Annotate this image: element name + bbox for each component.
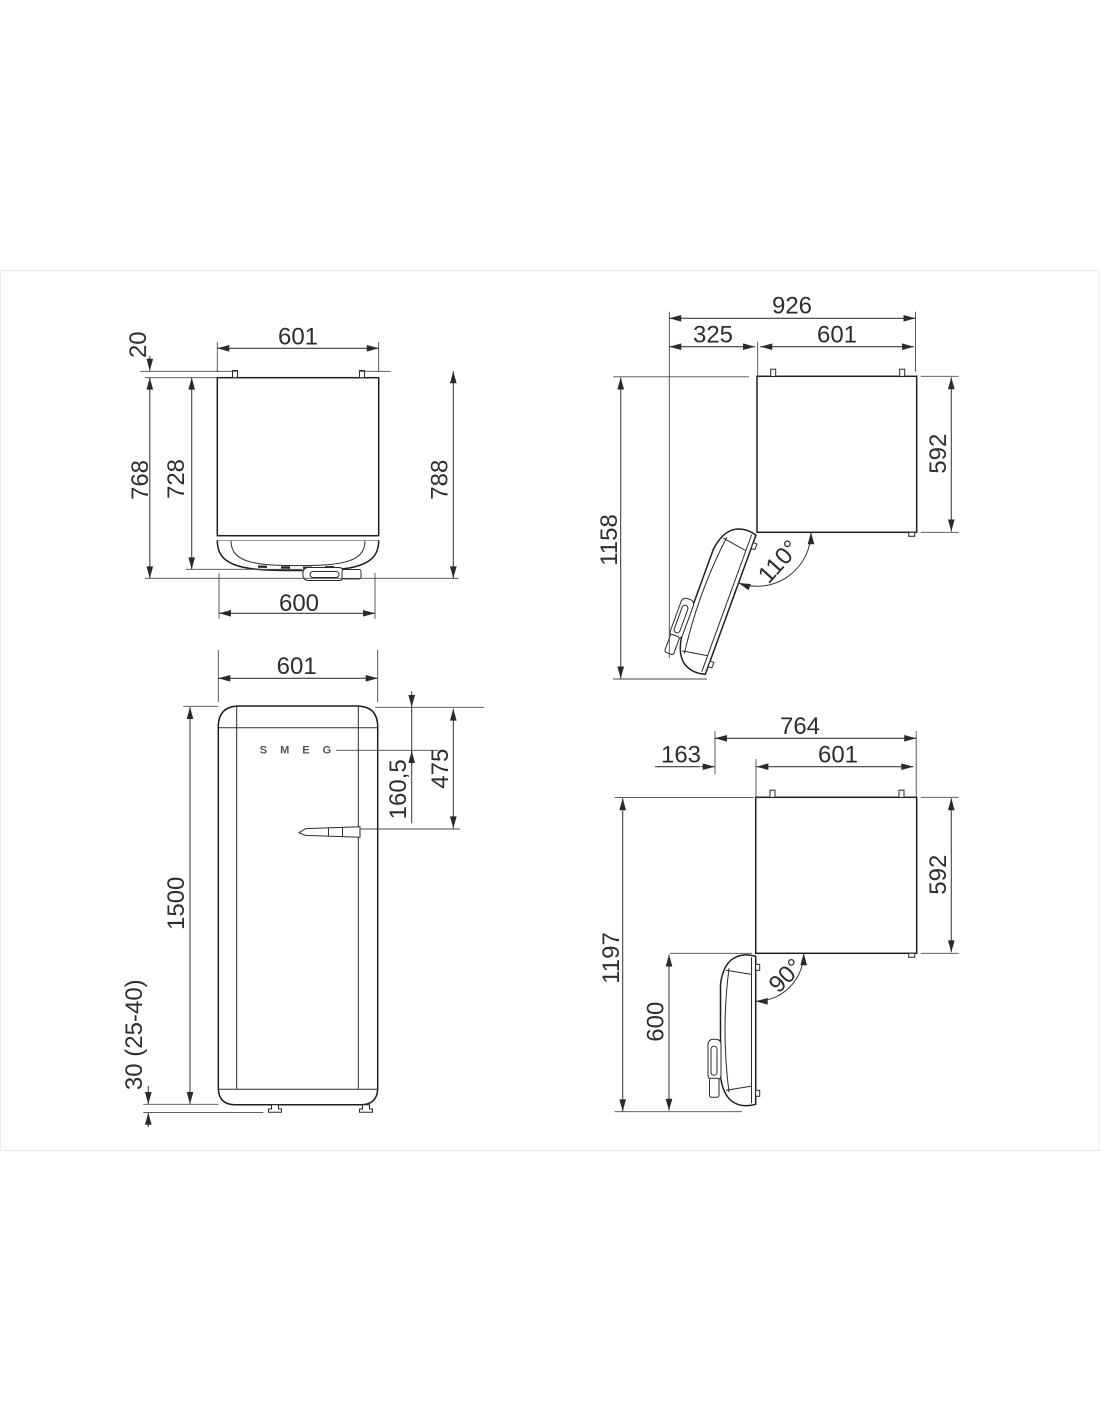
hinge-pin xyxy=(899,790,904,797)
dim-label-601: 601 xyxy=(818,742,858,769)
cabinet-top-outline xyxy=(757,376,917,532)
dim-label-728: 728 xyxy=(163,459,190,499)
refrigerator-dimension-diagram: 601 20 768 728 788 600 xyxy=(0,0,1100,1422)
dim-label-325: 325 xyxy=(693,322,733,349)
door-open-110 xyxy=(660,517,760,677)
dim-height: 1500 xyxy=(163,707,190,1104)
dim-width-top: 601 xyxy=(217,324,378,351)
dim-label-601: 601 xyxy=(817,322,857,349)
dim-width-door: 600 xyxy=(219,590,375,617)
dim-label-20: 20 xyxy=(125,331,152,358)
top-view-door-closed: 601 20 768 728 788 600 xyxy=(125,324,459,619)
dim-depth-total: 788 xyxy=(427,371,454,578)
dim-width: 601 xyxy=(760,322,914,349)
angle-90-annotation: 90° xyxy=(756,953,809,1001)
smeg-logo: SMEG xyxy=(260,745,344,757)
dim-depth-without-door: 728 xyxy=(163,378,192,570)
cabinet-top-outline xyxy=(217,378,378,536)
dim-label-160-5: 160,5 xyxy=(385,759,412,819)
feet xyxy=(269,1105,373,1113)
dim-label-1197: 1197 xyxy=(598,932,625,984)
corner-nub xyxy=(909,953,915,957)
front-handle xyxy=(299,827,360,837)
dim-label-600: 600 xyxy=(643,1002,670,1042)
dim-label-601-front: 601 xyxy=(277,653,317,680)
dim-label-926: 926 xyxy=(772,293,812,320)
top-view-door-open-110: 110° 926 325 601 1158 59 xyxy=(596,293,959,680)
dim-total-width: 926 xyxy=(669,293,915,320)
top-view-door-open-90: 90° 764 163 601 1197 xyxy=(598,713,959,1112)
dim-label-475: 475 xyxy=(427,749,454,789)
dim-total-depth: 1158 xyxy=(596,378,623,679)
card-border xyxy=(1,271,1100,1151)
dim-label-1500: 1500 xyxy=(163,877,190,930)
dim-hinge-protrusion: 20 xyxy=(125,331,152,370)
dim-door-swing: 325 xyxy=(669,322,755,349)
dim-label-788: 788 xyxy=(427,460,454,500)
cabinet-top-outline xyxy=(756,797,917,953)
hinge-pin xyxy=(900,369,905,376)
angle-label-110: 110° xyxy=(753,535,805,589)
dim-label-592: 592 xyxy=(925,855,952,895)
dim-label-764: 764 xyxy=(780,713,820,740)
dim-cabinet-depth: 592 xyxy=(925,377,952,531)
corner-nub xyxy=(909,532,915,536)
technical-drawing-page: 601 20 768 728 788 600 xyxy=(0,0,1100,1422)
dim-label-163: 163 xyxy=(661,742,701,769)
front-outline xyxy=(218,706,377,1105)
dim-door-depth: 163 xyxy=(655,742,715,769)
dim-depth-with-door: 768 xyxy=(127,378,154,579)
dim-handle-offset: 475 xyxy=(427,709,454,829)
angle-label-90: 90° xyxy=(764,954,809,999)
hinge-pin xyxy=(770,790,775,797)
dim-label-601-top: 601 xyxy=(278,324,318,351)
dim-label-592: 592 xyxy=(925,434,952,474)
hinge-pin xyxy=(771,369,776,376)
dim-door-width: 600 xyxy=(643,955,670,1111)
door-open-90 xyxy=(708,955,760,1106)
dim-logo-offset: 160,5 xyxy=(385,691,412,823)
dim-label-30-25-40: 30 (25-40) xyxy=(121,979,148,1090)
dim-width: 601 xyxy=(218,653,377,680)
dim-label-600: 600 xyxy=(279,590,319,617)
dim-width: 601 xyxy=(756,742,913,769)
dim-cabinet-depth: 592 xyxy=(925,798,952,952)
dim-label-768: 768 xyxy=(127,460,154,500)
dim-total-width: 764 xyxy=(715,713,916,740)
dim-label-1158: 1158 xyxy=(596,514,623,566)
dim-total-depth: 1197 xyxy=(598,798,625,1111)
front-view: SMEG 601 160,5 xyxy=(121,650,484,1127)
dim-feet-height: 30 (25-40) xyxy=(121,979,148,1127)
